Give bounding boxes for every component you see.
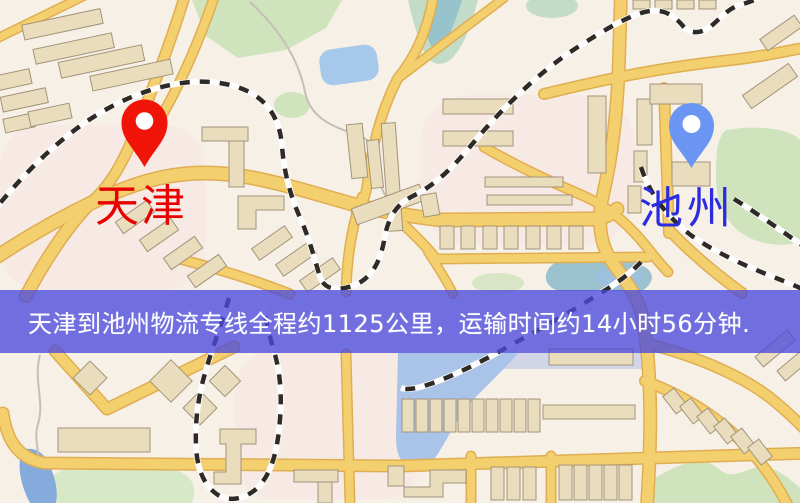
- destination-city-label: 池州: [639, 183, 735, 234]
- route-summary-text: 天津到池州物流专线全程约1125公里，运输时间约14小时56分钟.: [28, 304, 750, 339]
- map-region[interactable]: 天津 池州 天津到池州物流专线全程约1125公里，运输时间约14小时56分钟.: [0, 0, 800, 503]
- origin-city-label: 天津: [95, 181, 187, 232]
- route-info-banner: 天津到池州物流专线全程约1125公里，运输时间约14小时56分钟.: [0, 290, 800, 353]
- map-canvas[interactable]: 天津 池州: [0, 0, 800, 503]
